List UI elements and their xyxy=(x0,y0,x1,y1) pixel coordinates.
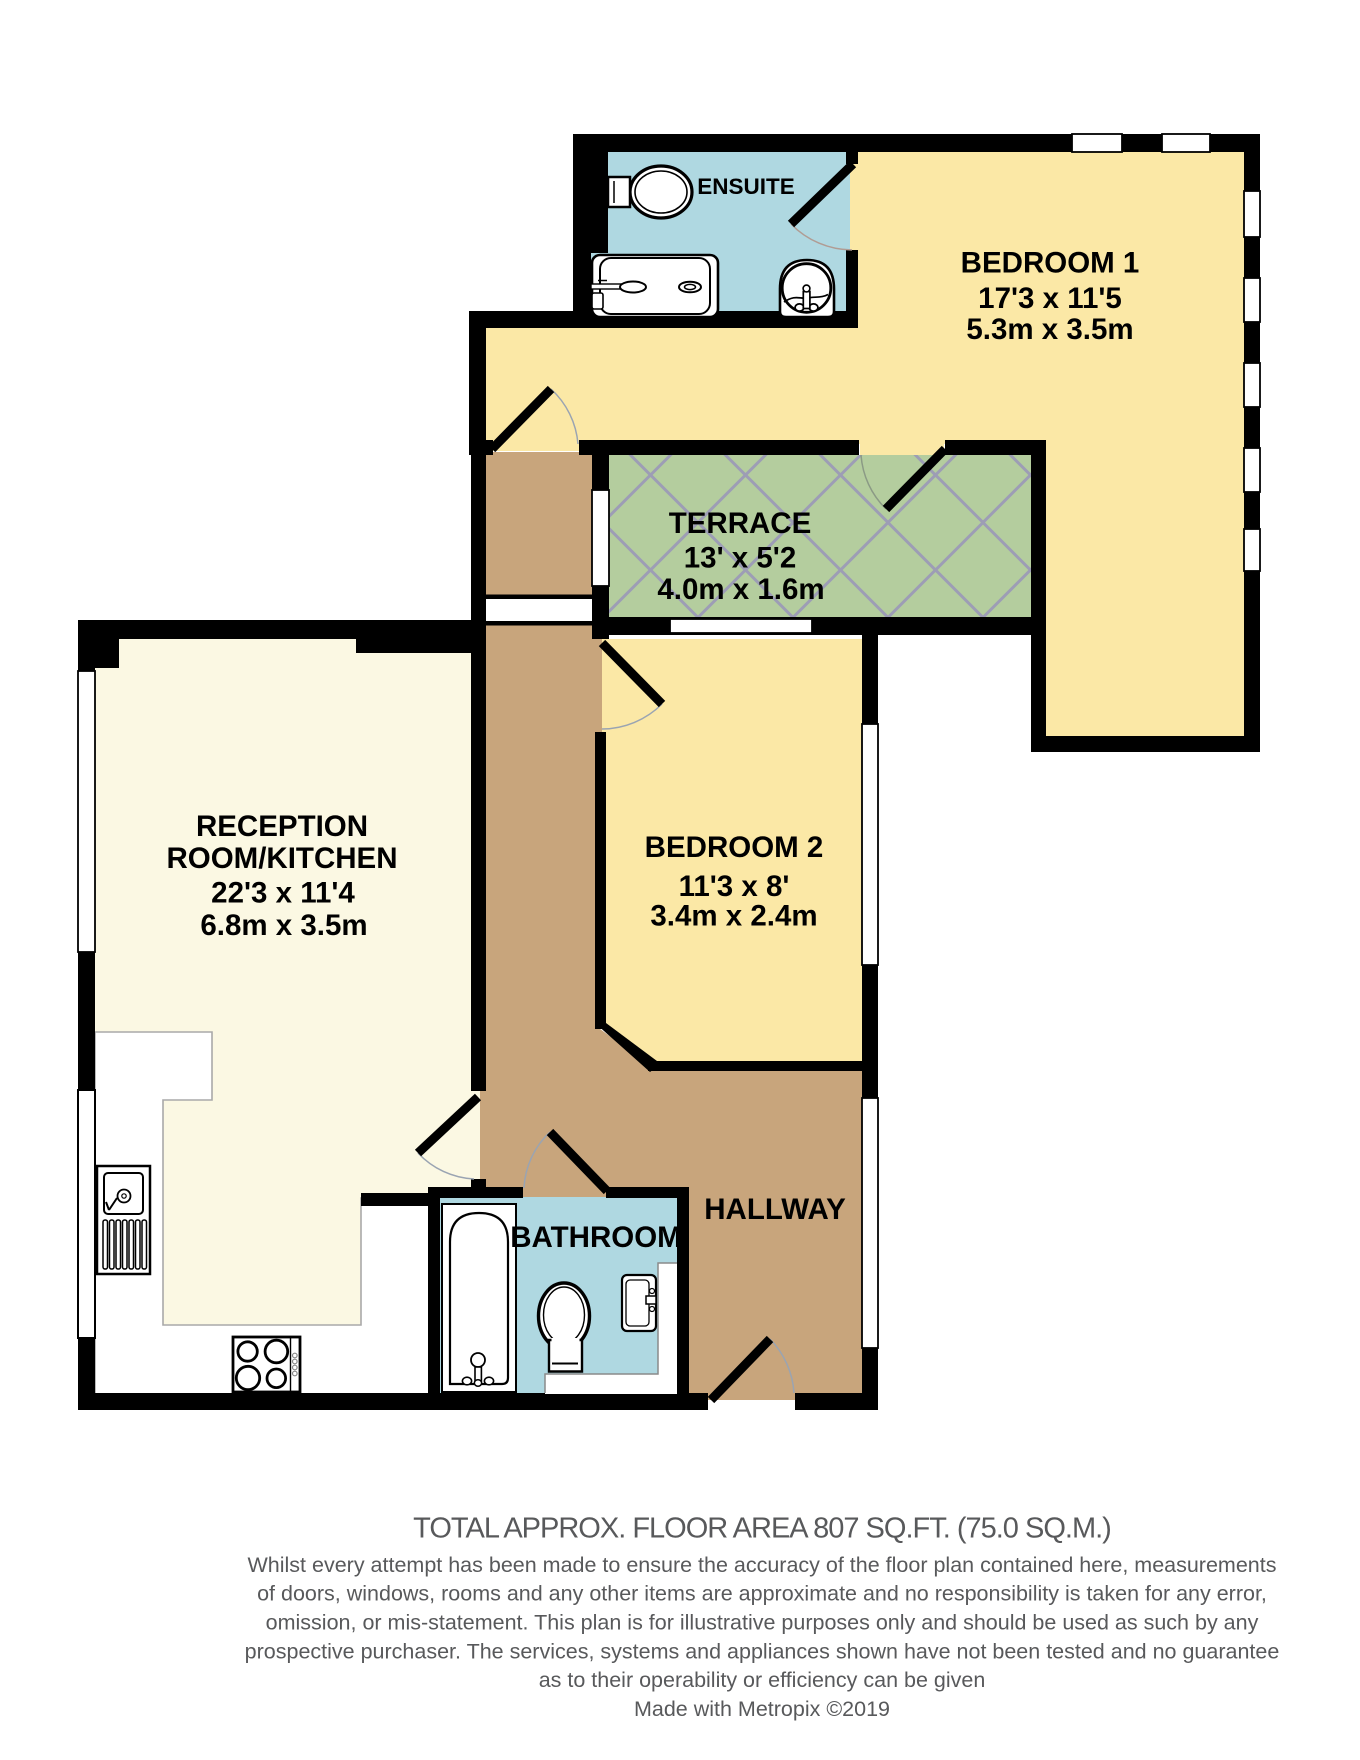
svg-text:of doors, windows, rooms and a: of doors, windows, rooms and any other i… xyxy=(257,1582,1267,1606)
svg-text:17'3 x 11'5: 17'3 x 11'5 xyxy=(978,282,1122,315)
svg-text:11'3 x 8': 11'3 x 8' xyxy=(679,870,790,903)
svg-text:omission, or mis-statement. Th: omission, or mis-statement. This plan is… xyxy=(266,1611,1259,1635)
svg-text:as to their operability or eff: as to their operability or efficiency ca… xyxy=(539,1668,986,1692)
svg-text:RECEPTION: RECEPTION xyxy=(196,810,368,843)
svg-text:6.8m x 3.5m: 6.8m x 3.5m xyxy=(200,909,367,942)
svg-text:BEDROOM 2: BEDROOM 2 xyxy=(645,831,824,864)
svg-text:BATHROOM: BATHROOM xyxy=(510,1221,682,1254)
svg-text:HALLWAY: HALLWAY xyxy=(704,1193,846,1226)
svg-text:ENSUITE: ENSUITE xyxy=(697,174,795,199)
svg-text:Made with Metropix ©2019: Made with Metropix ©2019 xyxy=(634,1697,890,1721)
svg-text:Whilst every attempt has been: Whilst every attempt has been made to en… xyxy=(248,1553,1277,1577)
svg-text:TOTAL APPROX. FLOOR AREA 807 S: TOTAL APPROX. FLOOR AREA 807 SQ.FT. (75.… xyxy=(413,1513,1111,1545)
svg-text:BEDROOM 1: BEDROOM 1 xyxy=(961,247,1140,280)
svg-text:ROOM/KITCHEN: ROOM/KITCHEN xyxy=(166,842,397,875)
svg-text:4.0m x 1.6m: 4.0m x 1.6m xyxy=(657,573,824,606)
svg-text:13' x 5'2: 13' x 5'2 xyxy=(684,542,796,575)
svg-text:22'3 x 11'4: 22'3 x 11'4 xyxy=(211,877,355,910)
svg-text:TERRACE: TERRACE xyxy=(669,507,812,540)
svg-text:prospective purchaser. The ser: prospective purchaser. The services, sys… xyxy=(245,1639,1280,1663)
svg-text:5.3m x 3.5m: 5.3m x 3.5m xyxy=(966,313,1133,346)
svg-text:3.4m x 2.4m: 3.4m x 2.4m xyxy=(650,900,817,933)
